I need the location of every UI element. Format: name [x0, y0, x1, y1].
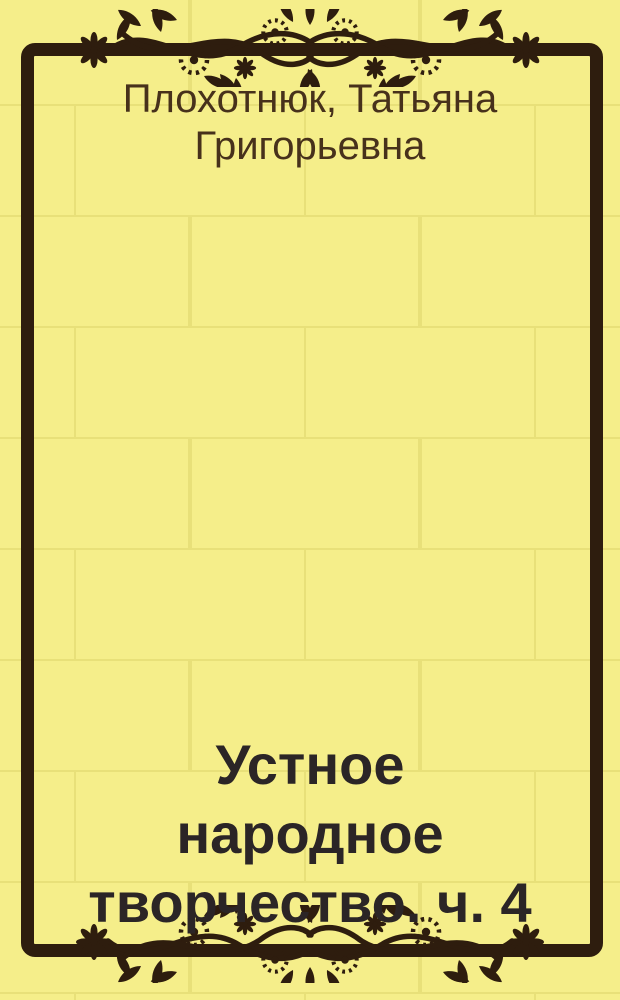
author-name-line: Плохотнюк, Татьяна — [36, 76, 584, 123]
title-line: Устное — [20, 730, 600, 799]
author-name-line: Григорьевна — [36, 123, 584, 170]
title-line: творчество. ч. 4 — [20, 868, 600, 937]
author-name: Плохотнюк, Татьяна Григорьевна — [36, 76, 584, 170]
title-line: народное — [20, 799, 600, 868]
book-cover: Плохотнюк, Татьяна Григорьевна Устное на… — [0, 0, 620, 1000]
book-title: Устное народное творчество. ч. 4 — [20, 730, 600, 937]
